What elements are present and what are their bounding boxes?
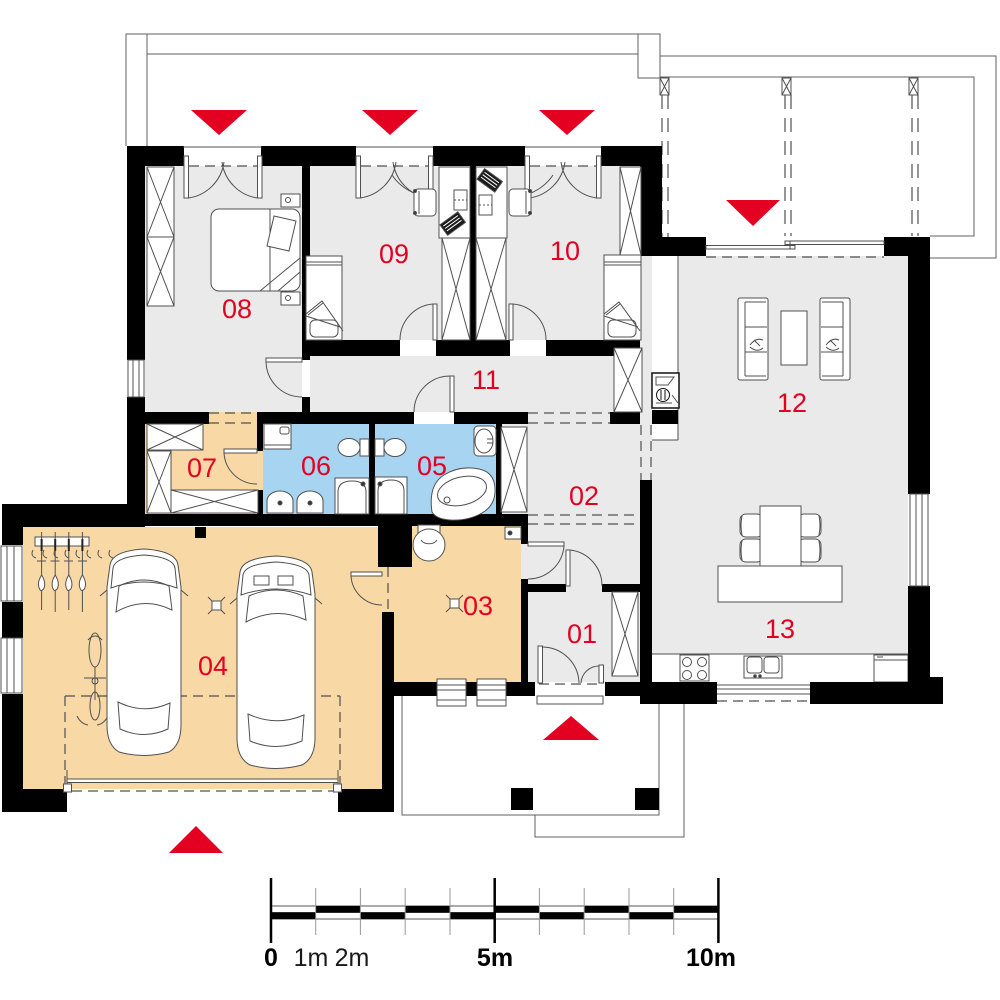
svg-text:1m: 1m: [294, 944, 329, 972]
svg-text:07: 07: [187, 453, 217, 483]
svg-text:04: 04: [198, 651, 228, 681]
svg-text:09: 09: [379, 239, 409, 269]
svg-text:02: 02: [569, 481, 599, 511]
svg-text:11: 11: [472, 365, 500, 395]
svg-text:10m: 10m: [686, 944, 736, 972]
svg-text:5m: 5m: [477, 944, 513, 972]
svg-text:0: 0: [264, 944, 278, 972]
svg-text:06: 06: [301, 451, 331, 481]
svg-text:12: 12: [777, 388, 807, 418]
svg-text:08: 08: [222, 294, 252, 324]
svg-text:10: 10: [550, 236, 580, 266]
svg-text:01: 01: [567, 619, 597, 649]
svg-text:05: 05: [417, 451, 447, 481]
svg-text:13: 13: [765, 614, 795, 644]
svg-text:2m: 2m: [335, 944, 370, 972]
svg-text:03: 03: [463, 591, 493, 621]
